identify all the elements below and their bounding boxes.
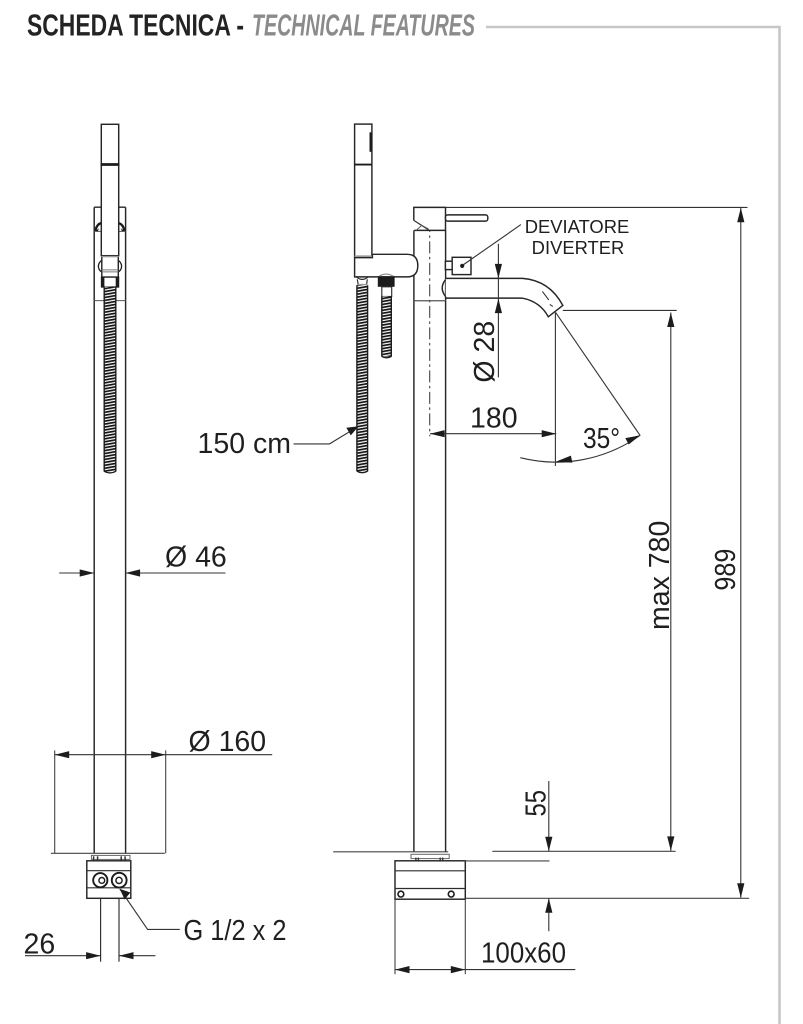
svg-text:55: 55 — [521, 790, 553, 817]
svg-text:TECHNICAL FEATURES: TECHNICAL FEATURES — [252, 9, 475, 43]
svg-text:180: 180 — [470, 403, 518, 435]
svg-text:Ø 46: Ø 46 — [165, 542, 227, 574]
svg-text:DIVERTER: DIVERTER — [532, 237, 625, 258]
svg-text:35°: 35° — [583, 423, 620, 455]
svg-text:100x60: 100x60 — [481, 938, 566, 970]
svg-text:989: 989 — [710, 549, 742, 591]
svg-text:150 cm: 150 cm — [198, 428, 291, 460]
svg-text:Ø 160: Ø 160 — [189, 726, 267, 758]
svg-text:G 1/2 x 2: G 1/2 x 2 — [184, 915, 287, 947]
svg-text:Ø 28: Ø 28 — [469, 321, 501, 383]
svg-text:SCHEDA TECNICA -: SCHEDA TECNICA - — [27, 9, 244, 43]
svg-text:max 780: max 780 — [644, 521, 676, 630]
svg-text:DEVIATORE: DEVIATORE — [525, 216, 630, 237]
